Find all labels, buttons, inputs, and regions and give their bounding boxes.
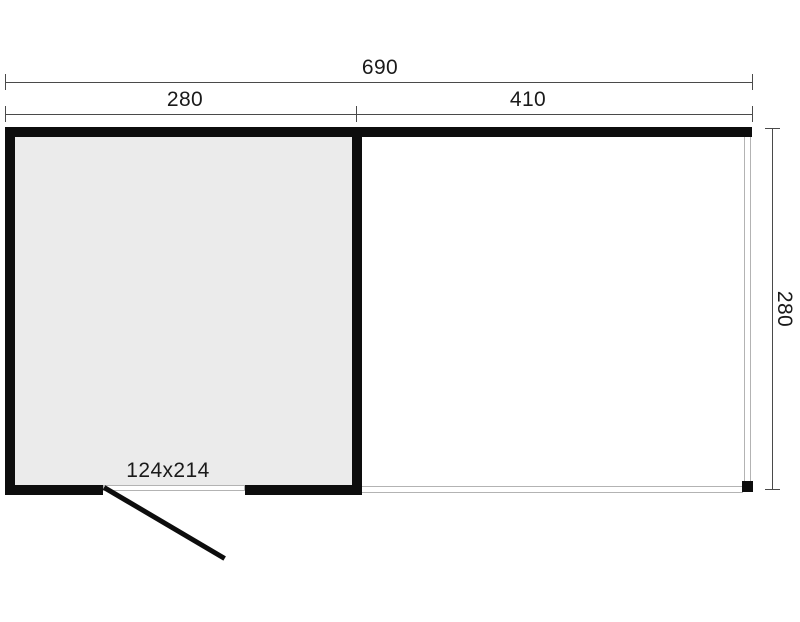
door-size-label: 124x214 (98, 460, 238, 482)
dim-tick (765, 489, 780, 490)
dim-line-overall-width (5, 82, 753, 83)
dim-label-overall-width: 690 (340, 57, 420, 79)
door-threshold (103, 485, 245, 491)
dim-tick (5, 106, 6, 122)
dim-tick (752, 106, 753, 122)
room-floor (9, 130, 357, 490)
wall-top (5, 127, 752, 137)
canopy-right-edge (744, 137, 751, 482)
dim-tick (5, 74, 6, 90)
dim-line-segments (5, 114, 753, 115)
dim-label-canopy-width: 410 (488, 89, 568, 111)
floor-plan-canvas: 690 280 410 124x214 280 (0, 0, 800, 622)
wall-bottom-left-segment (5, 485, 103, 495)
wall-left (5, 127, 15, 495)
corner-post (742, 481, 753, 492)
dim-label-depth: 280 (773, 269, 795, 349)
dim-label-room-width: 280 (145, 89, 225, 111)
canopy-bottom-edge (362, 486, 743, 493)
wall-interior (352, 127, 362, 495)
dim-tick (356, 106, 357, 122)
wall-bottom-right-segment (245, 485, 362, 495)
door-leaf (103, 485, 226, 560)
dim-tick (752, 74, 753, 90)
dim-tick (765, 128, 780, 129)
